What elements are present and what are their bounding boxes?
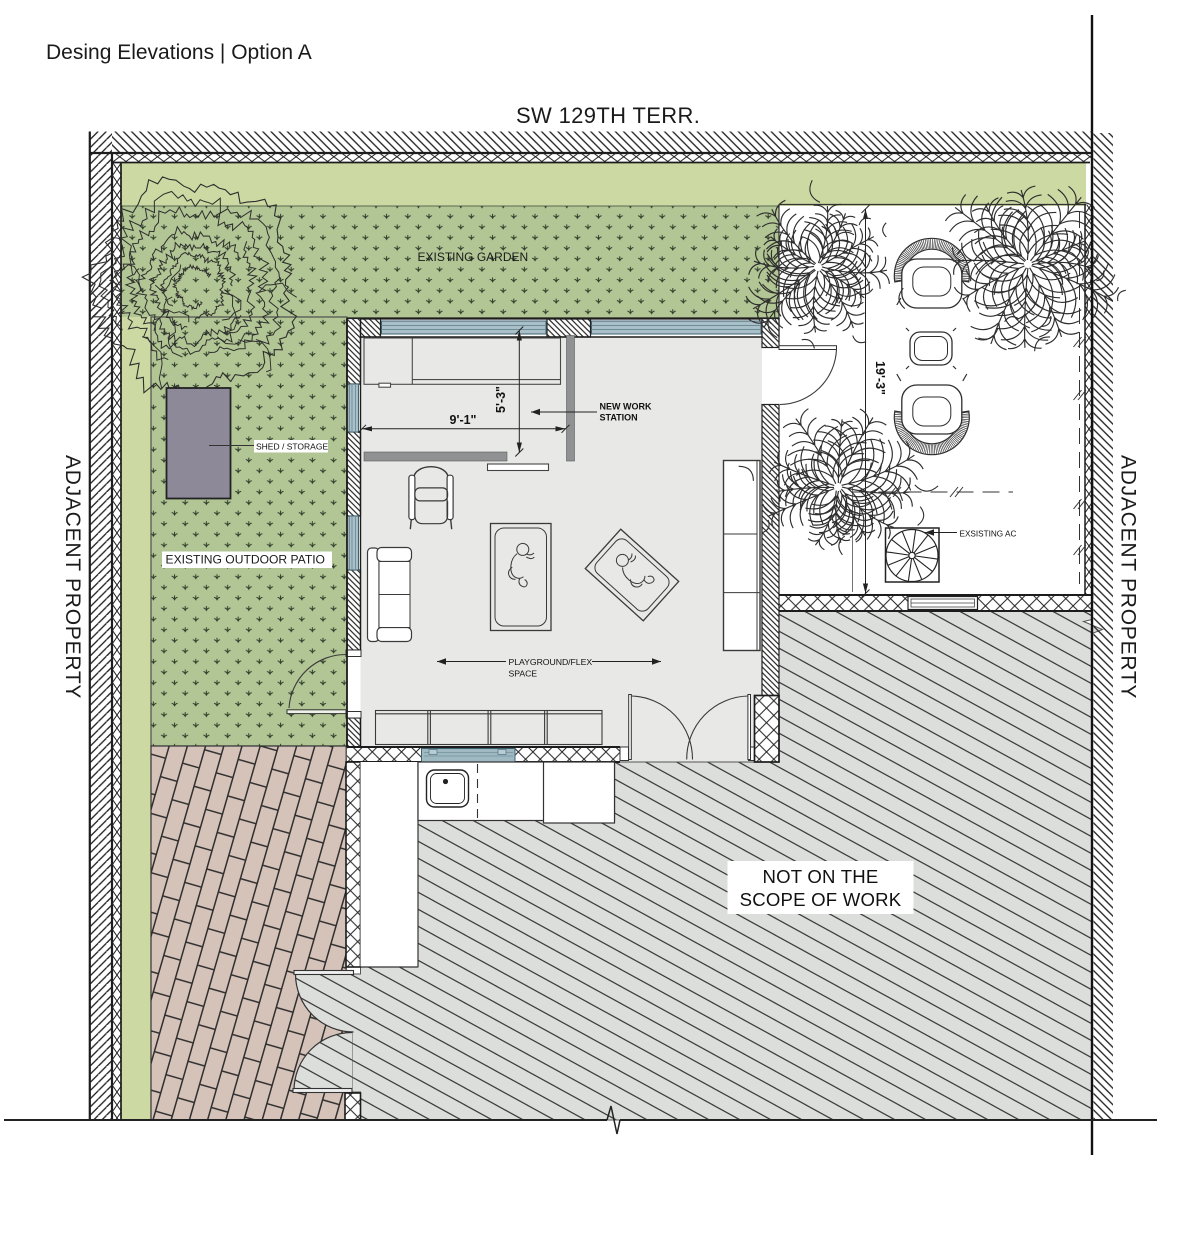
svg-text:9'-1": 9'-1" — [450, 413, 477, 427]
svg-text:NOT ON THE: NOT ON THE — [763, 866, 879, 887]
svg-text:19'-3": 19'-3" — [873, 361, 887, 395]
svg-text:Desing Elevations | Option A: Desing Elevations | Option A — [46, 41, 312, 64]
svg-text:PLAYGROUND/FLEX: PLAYGROUND/FLEX — [509, 657, 593, 667]
svg-text:SW 129TH TERR.: SW 129TH TERR. — [516, 103, 700, 128]
svg-text:5'-3": 5'-3" — [494, 386, 508, 413]
svg-text:EXISTING OUTDOOR PATIO: EXISTING OUTDOOR PATIO — [166, 553, 325, 567]
svg-text:STATION: STATION — [600, 413, 638, 423]
svg-text:SPACE: SPACE — [509, 669, 538, 679]
svg-text:ADJACENT PROPERTY: ADJACENT PROPERTY — [1117, 455, 1140, 699]
svg-text:ADJACENT PROPERTY: ADJACENT PROPERTY — [61, 455, 84, 699]
svg-text:SHED / STORAGE: SHED / STORAGE — [256, 442, 328, 452]
svg-text:EXSISTING AC: EXSISTING AC — [960, 530, 1017, 539]
svg-text:EXISTING GARDEN: EXISTING GARDEN — [418, 250, 529, 264]
svg-text:SCOPE OF WORK: SCOPE OF WORK — [740, 889, 902, 910]
svg-text:NEW WORK: NEW WORK — [600, 402, 652, 412]
